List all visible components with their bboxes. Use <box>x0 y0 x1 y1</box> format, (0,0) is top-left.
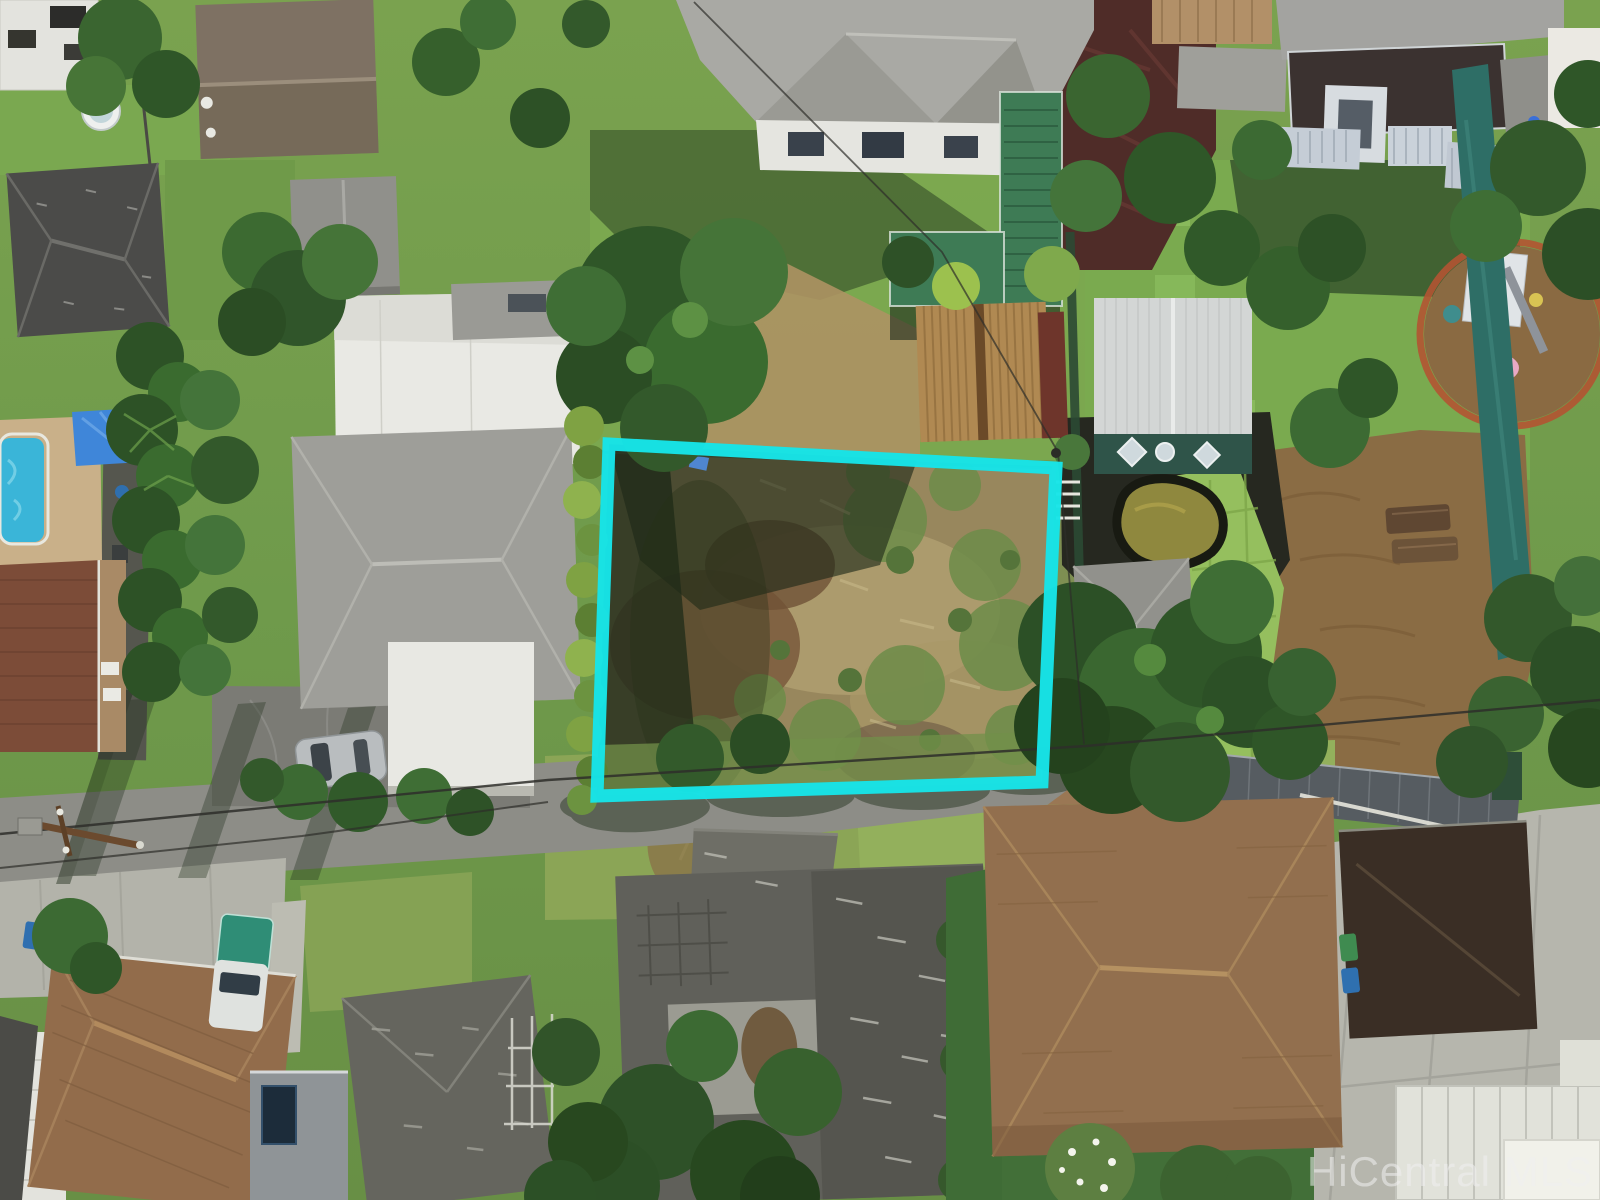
transformer <box>18 818 42 835</box>
garage-espresso-roof <box>1339 821 1538 1039</box>
house-dark-hip-roof <box>6 163 169 337</box>
solar-panel <box>262 1086 296 1144</box>
swimming-pool <box>0 438 44 542</box>
watermark: HiCentral MLS <box>1307 1148 1593 1195</box>
aerial-photo-stage: HiCentral MLS <box>0 0 1600 1200</box>
green-gable-shed <box>1094 298 1252 474</box>
pole-top <box>1051 448 1061 458</box>
green-trash-bin <box>1339 933 1359 962</box>
house-brown-gable-top <box>195 0 378 159</box>
house-terracotta-left <box>0 556 126 752</box>
aerial-photo: HiCentral MLS <box>0 0 1600 1200</box>
white-carport <box>388 642 534 794</box>
old-gray-house-west <box>342 975 557 1200</box>
maroon-shed <box>1038 312 1068 439</box>
house-bottom-right-brown <box>946 769 1342 1200</box>
backyard-pond <box>1117 479 1223 567</box>
blue-trash-bin-2 <box>1341 967 1361 994</box>
